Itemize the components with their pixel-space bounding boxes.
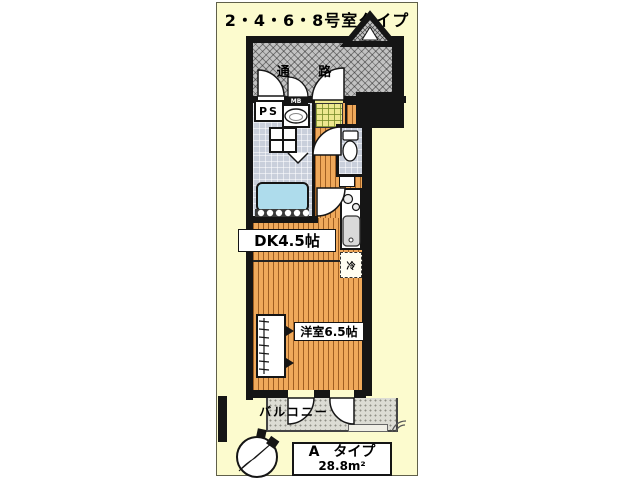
- closet: [256, 314, 286, 378]
- balcony-step: [348, 424, 388, 432]
- wall: [336, 124, 366, 128]
- type-legend-box: A タイプ 28.8m²: [292, 442, 392, 476]
- wall: [246, 36, 253, 103]
- balcony-label: バルコニー: [248, 403, 340, 420]
- wall: [314, 390, 330, 398]
- wall: [246, 216, 318, 223]
- type-area: 28.8m²: [318, 460, 365, 473]
- wall: [336, 124, 339, 177]
- vanity-unit: [282, 104, 310, 128]
- wall: [354, 390, 366, 398]
- wall: [356, 92, 404, 128]
- type-name: A タイプ: [309, 445, 376, 460]
- pipe-space-box: PS: [254, 100, 284, 122]
- dk-label-box: DK4.5帖: [238, 229, 336, 252]
- corridor-label: 通 路: [262, 61, 346, 80]
- toilet-room-floor: [339, 128, 362, 174]
- western-room-label: 洋室6.5帖: [300, 323, 357, 340]
- bathtub: [256, 182, 309, 212]
- wall: [362, 124, 372, 396]
- wall: [312, 100, 315, 218]
- wall: [250, 390, 288, 398]
- door-opening: [313, 96, 343, 103]
- western-room-label-box: 洋室6.5帖: [294, 322, 364, 341]
- wall-stub: [218, 396, 227, 442]
- refrigerator-label: 冷: [346, 259, 355, 272]
- plan-title: 2・4・6・8号室タイプ: [216, 7, 418, 31]
- kitchen-counter: [340, 188, 362, 250]
- wall: [246, 36, 402, 43]
- dk-label: DK4.5帖: [254, 230, 320, 251]
- washer-space: [339, 176, 355, 187]
- pipe-space-label: PS: [259, 105, 279, 118]
- refrigerator-space: 冷: [340, 252, 362, 278]
